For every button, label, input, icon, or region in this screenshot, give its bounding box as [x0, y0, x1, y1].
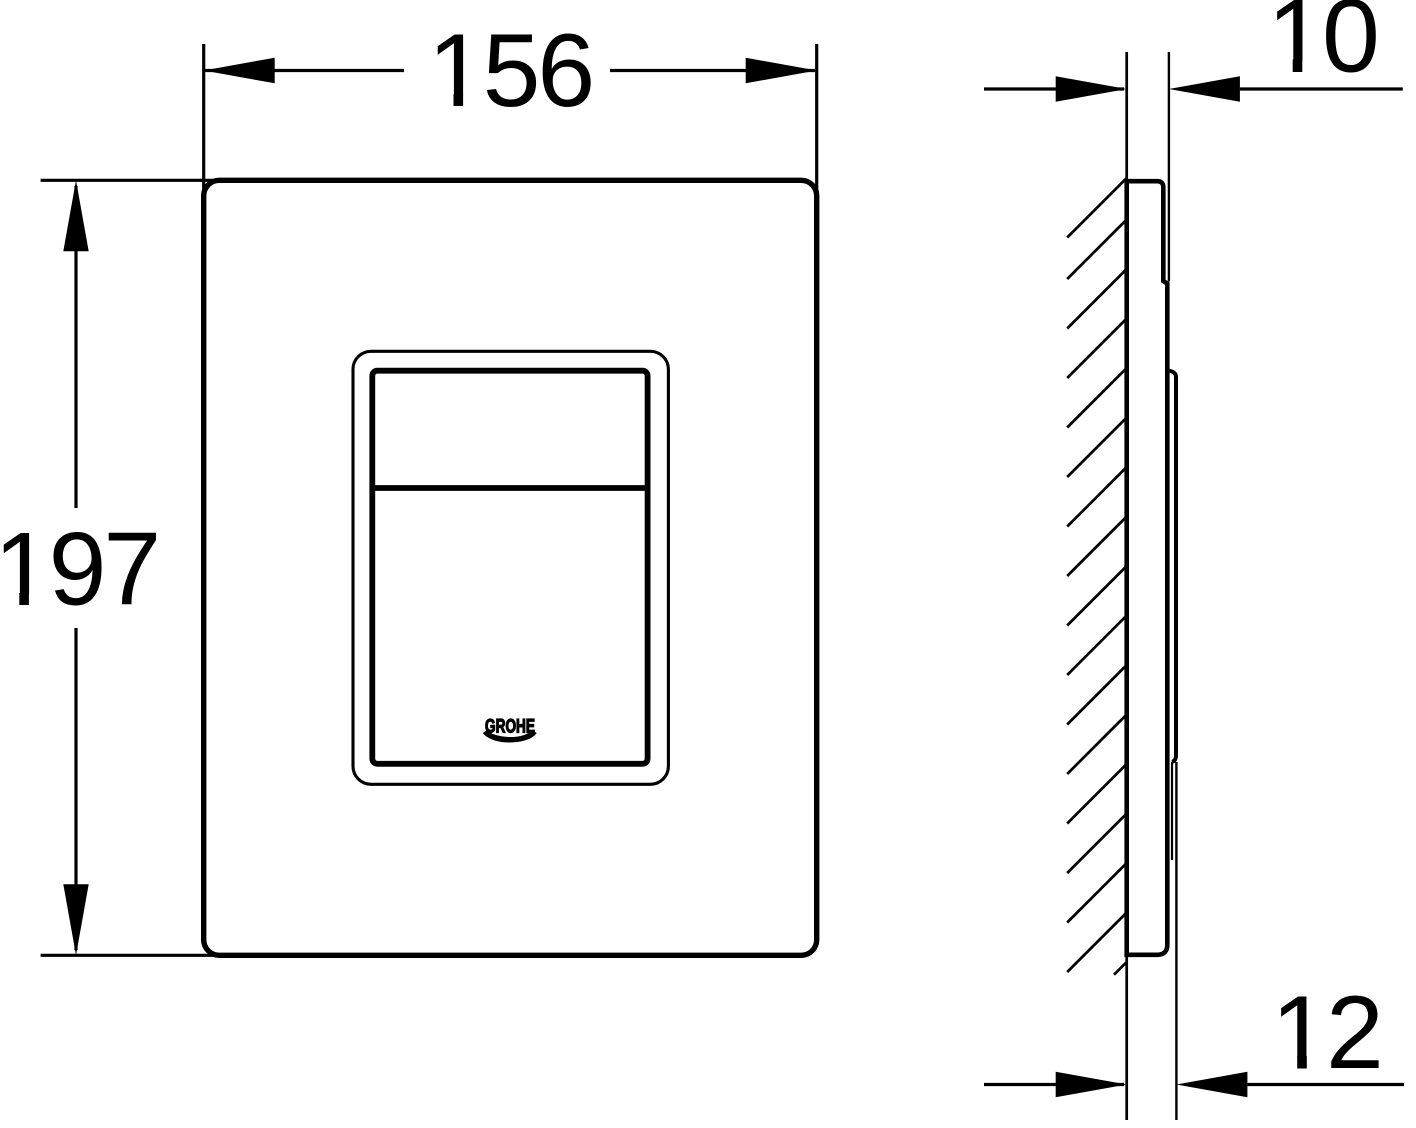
svg-text:10: 10	[1267, 0, 1377, 95]
svg-text:197: 197	[0, 512, 158, 628]
svg-text:156: 156	[428, 13, 593, 129]
svg-text:12: 12	[1271, 975, 1381, 1091]
